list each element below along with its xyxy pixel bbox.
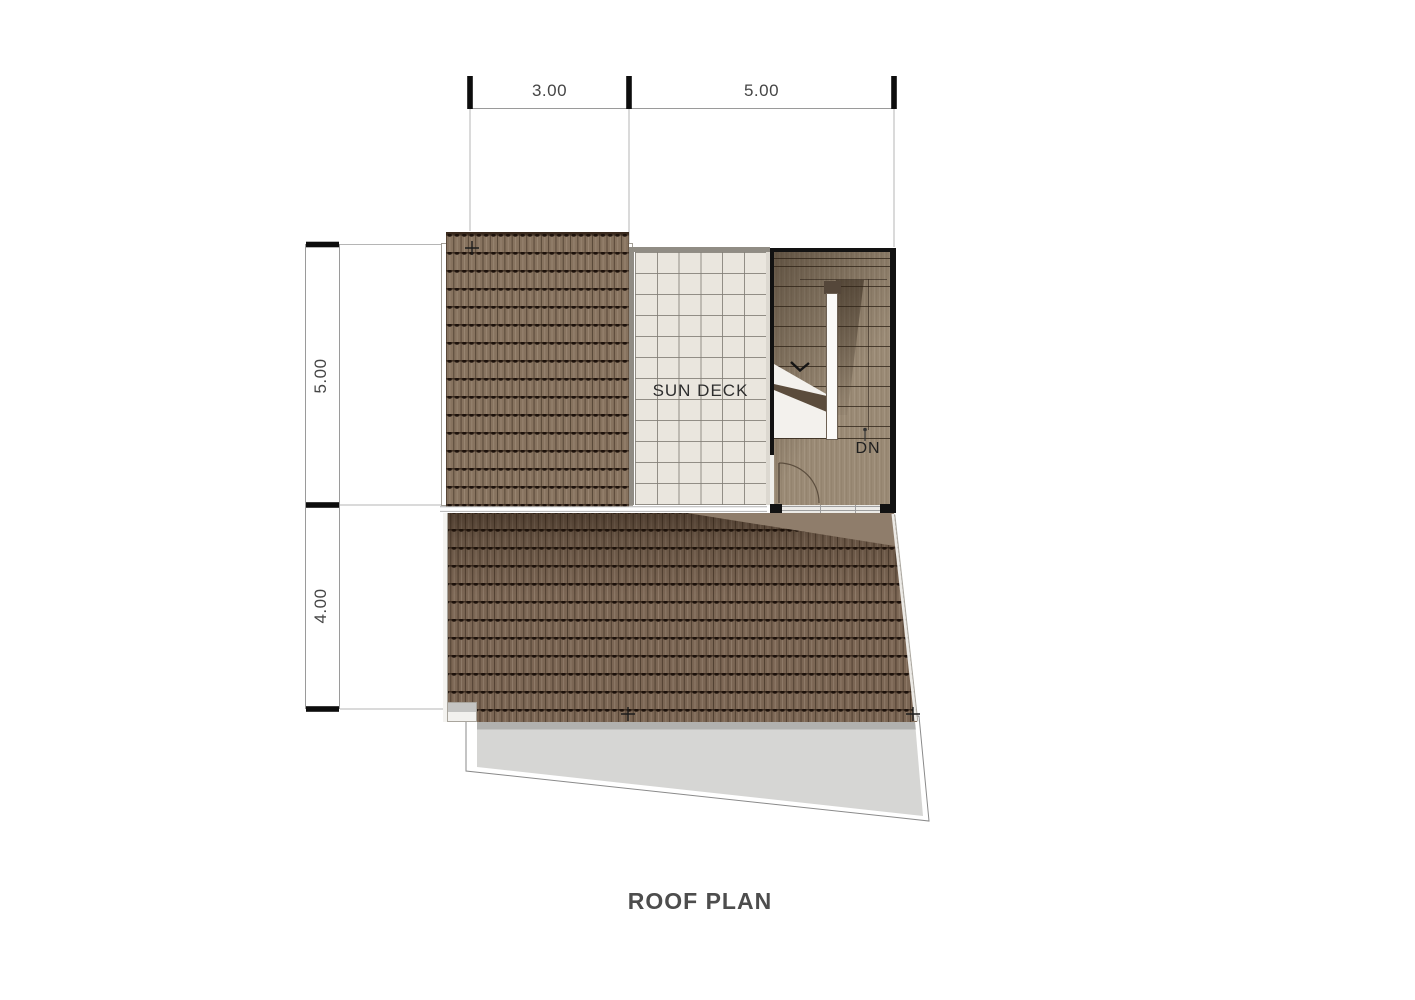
dn-marker-dot [863, 428, 867, 432]
roof-plan-canvas: 3.00 5.00 5.00 4.00 SUN DECK DN [0, 0, 1415, 1000]
roof-edge-band [893, 514, 916, 721]
detail-linework [0, 0, 1415, 1000]
roof-edge-line [895, 515, 918, 722]
grid-cross-marker [621, 707, 635, 721]
page-title: ROOF PLAN [550, 889, 850, 913]
down-arrow-icon [791, 362, 809, 371]
door-swing-arc [779, 463, 819, 503]
grid-cross-marker [465, 241, 479, 255]
